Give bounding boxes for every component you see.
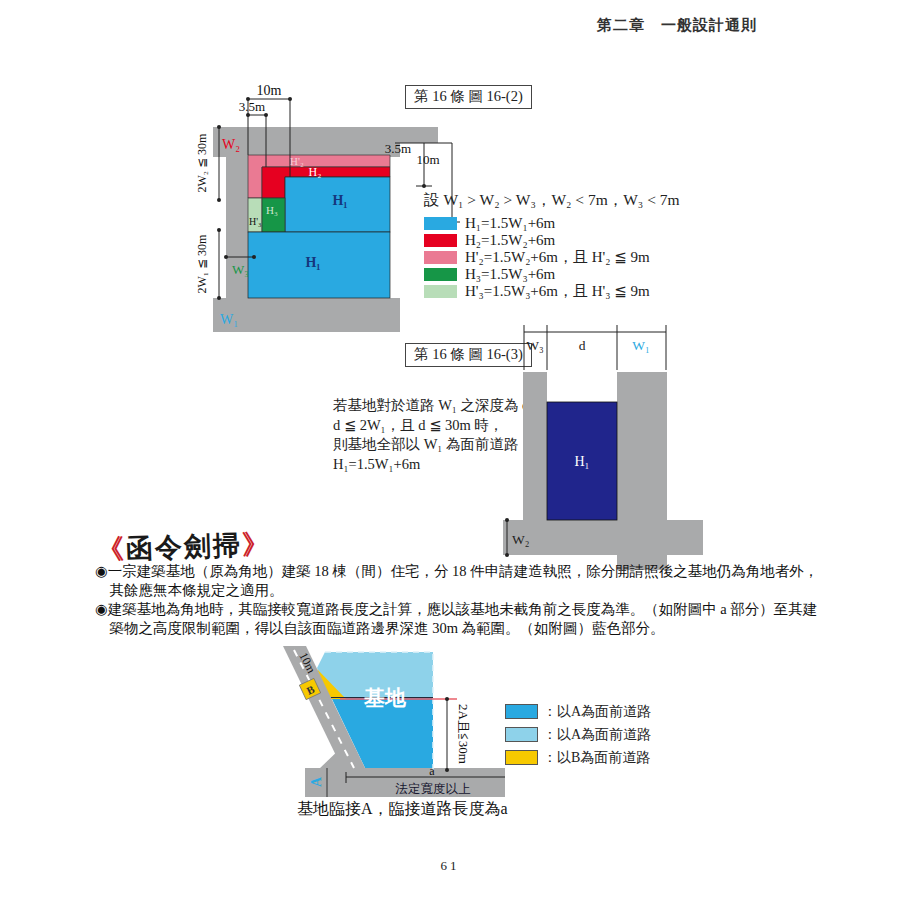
road-a-label: A xyxy=(309,776,324,787)
dim-10m-top: 10m xyxy=(257,83,282,98)
dim-10m-right: 10m xyxy=(416,152,439,167)
figure-16-2-legend: 設 W₁ > W₂ > W₃，W₂ < 7m，W₃ < 7m H₁=1.5W₁+… xyxy=(424,190,680,300)
legend-row: H₃=1.5W₃+6m xyxy=(424,266,680,283)
color-swatch-yellow xyxy=(505,750,538,765)
dim-dot xyxy=(422,184,426,188)
bullet-item: ◉建築基地為角地時，其臨接較寬道路長度之計算，應以該基地未截角前之長度為準。（如… xyxy=(95,600,822,638)
zone-label-h2: H₂ xyxy=(309,165,322,179)
legend-row: ：以A為面前道路 xyxy=(505,704,651,719)
corner-site-diagram: 2A且≦30m a 法定寬度以上 A B 10m 基地 xyxy=(255,638,505,803)
dim-a-label: a xyxy=(429,764,435,778)
dim-dot xyxy=(445,768,449,772)
legend-row: H₂=1.5W₂+6m xyxy=(424,232,680,249)
dim-dot xyxy=(445,697,449,701)
legend-text-yellow: ：以B為面前道路 xyxy=(543,749,650,767)
bullet-marker: ◉ xyxy=(95,601,108,617)
zone-label-h1: H₁ xyxy=(575,454,590,469)
legend-text-lightblue: ：以A為面前道路 xyxy=(543,726,651,744)
dim-depth-limit: 2A且≦30m xyxy=(456,704,471,764)
dim-3.5m-top: 3.5m xyxy=(239,99,265,114)
dim-dot xyxy=(252,255,256,259)
dim-dot xyxy=(217,198,221,202)
color-swatch-h2-prime xyxy=(424,251,457,264)
road-label-w1: W₁ xyxy=(220,312,238,327)
road-w2-bottom xyxy=(503,520,703,555)
corner-site-legend: ：以A為面前道路 ：以A為面前道路 ：以B為面前道路 xyxy=(505,704,651,773)
directive-bullets: ◉一宗建築基地（原為角地）建築 18 棟（間）住宅，分 18 件申請建造執照，除… xyxy=(95,562,822,638)
color-swatch-h3 xyxy=(424,268,457,281)
legend-row: ：以B為面前道路 xyxy=(505,750,651,765)
chapter-header: 第二章 一般設計通則 xyxy=(597,16,757,35)
bracket-close: 》 xyxy=(241,529,271,560)
dim-dot xyxy=(217,125,221,129)
road-label-w2: W₂ xyxy=(512,532,529,547)
zone-label-h2-prime: H'₂ xyxy=(290,155,304,167)
zone-label-h3-prime: H'₃ xyxy=(249,216,262,227)
legend-formula-h3-prime: H'₃=1.5W₃+6m，且 H'₃ ≦ 9m xyxy=(465,282,650,301)
dim-dot xyxy=(217,228,221,232)
legend-formula-h3: H₃=1.5W₃+6m xyxy=(465,266,555,283)
document-page: 第二章 一般設計通則 第 16 條 圖 16-(2) 10m 3.5m xyxy=(0,0,900,900)
color-swatch-h1 xyxy=(424,217,457,230)
zone-label-h1-lower: H₁ xyxy=(305,255,320,270)
legend-text-blue: ：以A為面前道路 xyxy=(543,703,651,721)
dim-label-w3: W₃ xyxy=(526,338,544,353)
color-swatch-blue xyxy=(505,704,538,719)
site-label: 基地 xyxy=(363,686,407,710)
dim-dot xyxy=(505,553,509,557)
legend-row: H'₂=1.5W₂+6m，且 H'₂ ≦ 9m xyxy=(424,249,680,266)
page-number: 61 xyxy=(0,858,900,874)
bullet-marker: ◉ xyxy=(95,563,108,579)
legend-row: ：以A為面前道路 xyxy=(505,727,651,742)
color-swatch-h3-prime xyxy=(424,285,457,298)
bullet-item: ◉一宗建築基地（原為角地）建築 18 棟（間）住宅，分 18 件申請建造執照，除… xyxy=(95,562,822,600)
dim-dot xyxy=(288,97,292,101)
dim-2w1-limit: 2W₁ ≦ 30m xyxy=(195,234,209,294)
dim-dot xyxy=(217,296,221,300)
zone-label-h1-upper: H₁ xyxy=(332,193,347,208)
dim-3.5m-right: 3.5m xyxy=(385,141,411,156)
legend-row: H'₃=1.5W₃+6m，且 H'₃ ≦ 9m xyxy=(424,283,680,300)
road-w2-top xyxy=(213,127,400,157)
bullet-text-1: 一宗建築基地（原為角地）建築 18 棟（間）住宅，分 18 件申請建造執照，除分… xyxy=(108,563,819,598)
legend-formula-h1: H₁=1.5W₁+6m xyxy=(465,215,555,232)
legend-formula-h2: H₂=1.5W₂+6m xyxy=(465,232,555,249)
figure-16-3-diagram: W₃ d W₁ H₁ W₂ xyxy=(500,320,710,575)
road-label-w2: W₂ xyxy=(222,137,240,152)
bullet-text-2: 建築基地為角地時，其臨接較寬道路長度之計算，應以該基地未截角前之長度為準。（如附… xyxy=(108,601,818,636)
dim-2w2-limit: 2W₂ ≦ 30m xyxy=(195,133,209,193)
color-swatch-lightblue xyxy=(505,727,538,742)
directives-title-text: 函令劍掃 xyxy=(126,530,243,564)
legend-assumption: 設 W₁ > W₂ > W₃，W₂ < 7m，W₃ < 7m xyxy=(424,190,680,211)
dim-label-d: d xyxy=(579,338,586,353)
color-swatch-h2 xyxy=(424,234,457,247)
zone-label-h3: H₃ xyxy=(266,204,278,216)
dim-label-w1: W₁ xyxy=(632,338,649,353)
corner-site-caption: 基地臨接A，臨接道路長度為a xyxy=(297,799,508,820)
road-junction-fillet xyxy=(318,744,345,770)
road-w3-column xyxy=(523,372,547,520)
dim-dot xyxy=(224,255,228,259)
legend-formula-h2-prime: H'₂=1.5W₂+6m，且 H'₂ ≦ 9m xyxy=(465,248,650,267)
legal-width-label: 法定寬度以上 xyxy=(395,782,472,796)
bracket-open: 《 xyxy=(97,534,127,565)
road-w1-bottom xyxy=(213,298,400,332)
road-label-w3: W₃ xyxy=(232,262,249,277)
legend-row: H₁=1.5W₁+6m xyxy=(424,215,680,232)
dim-dot xyxy=(505,518,509,522)
